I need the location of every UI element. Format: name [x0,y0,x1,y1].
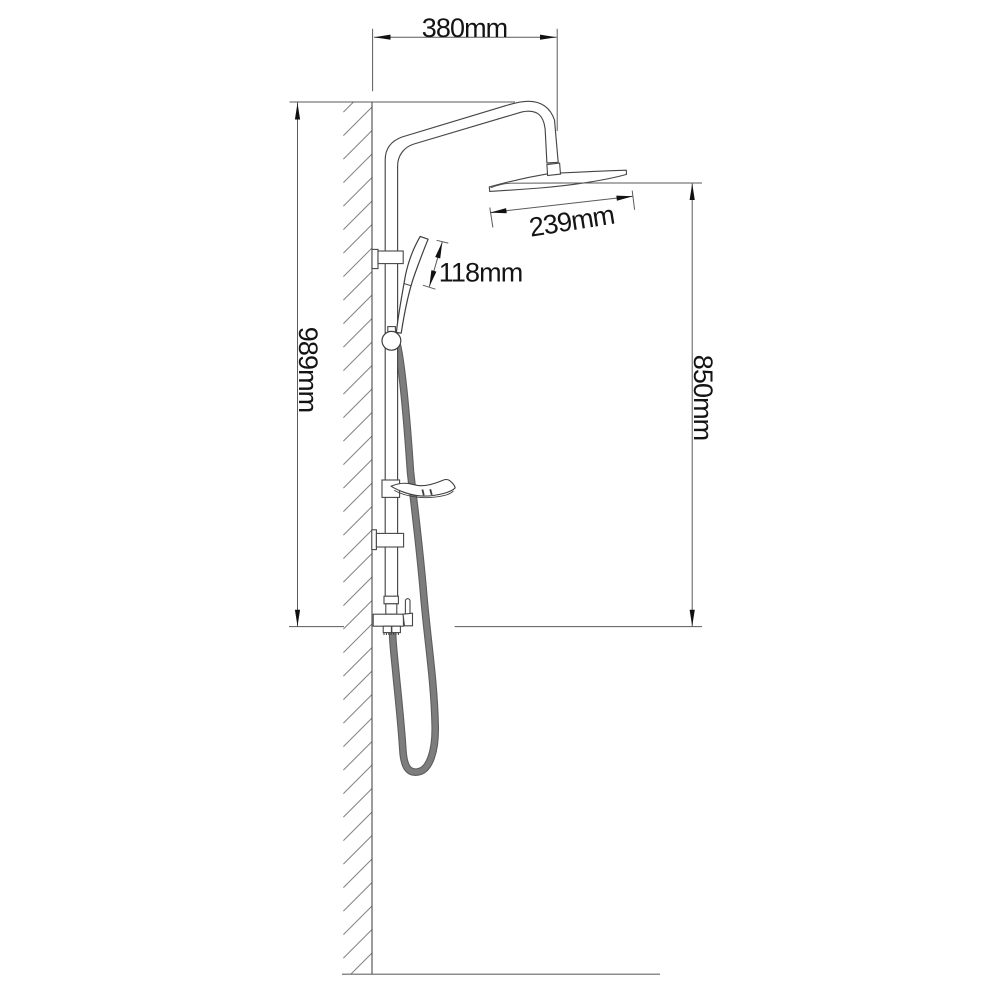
svg-text:239mm: 239mm [527,200,616,243]
svg-text:380mm: 380mm [422,13,508,43]
svg-text:989mm: 989mm [293,327,323,413]
svg-text:850mm: 850mm [688,355,718,441]
svg-text:118mm: 118mm [439,258,523,288]
